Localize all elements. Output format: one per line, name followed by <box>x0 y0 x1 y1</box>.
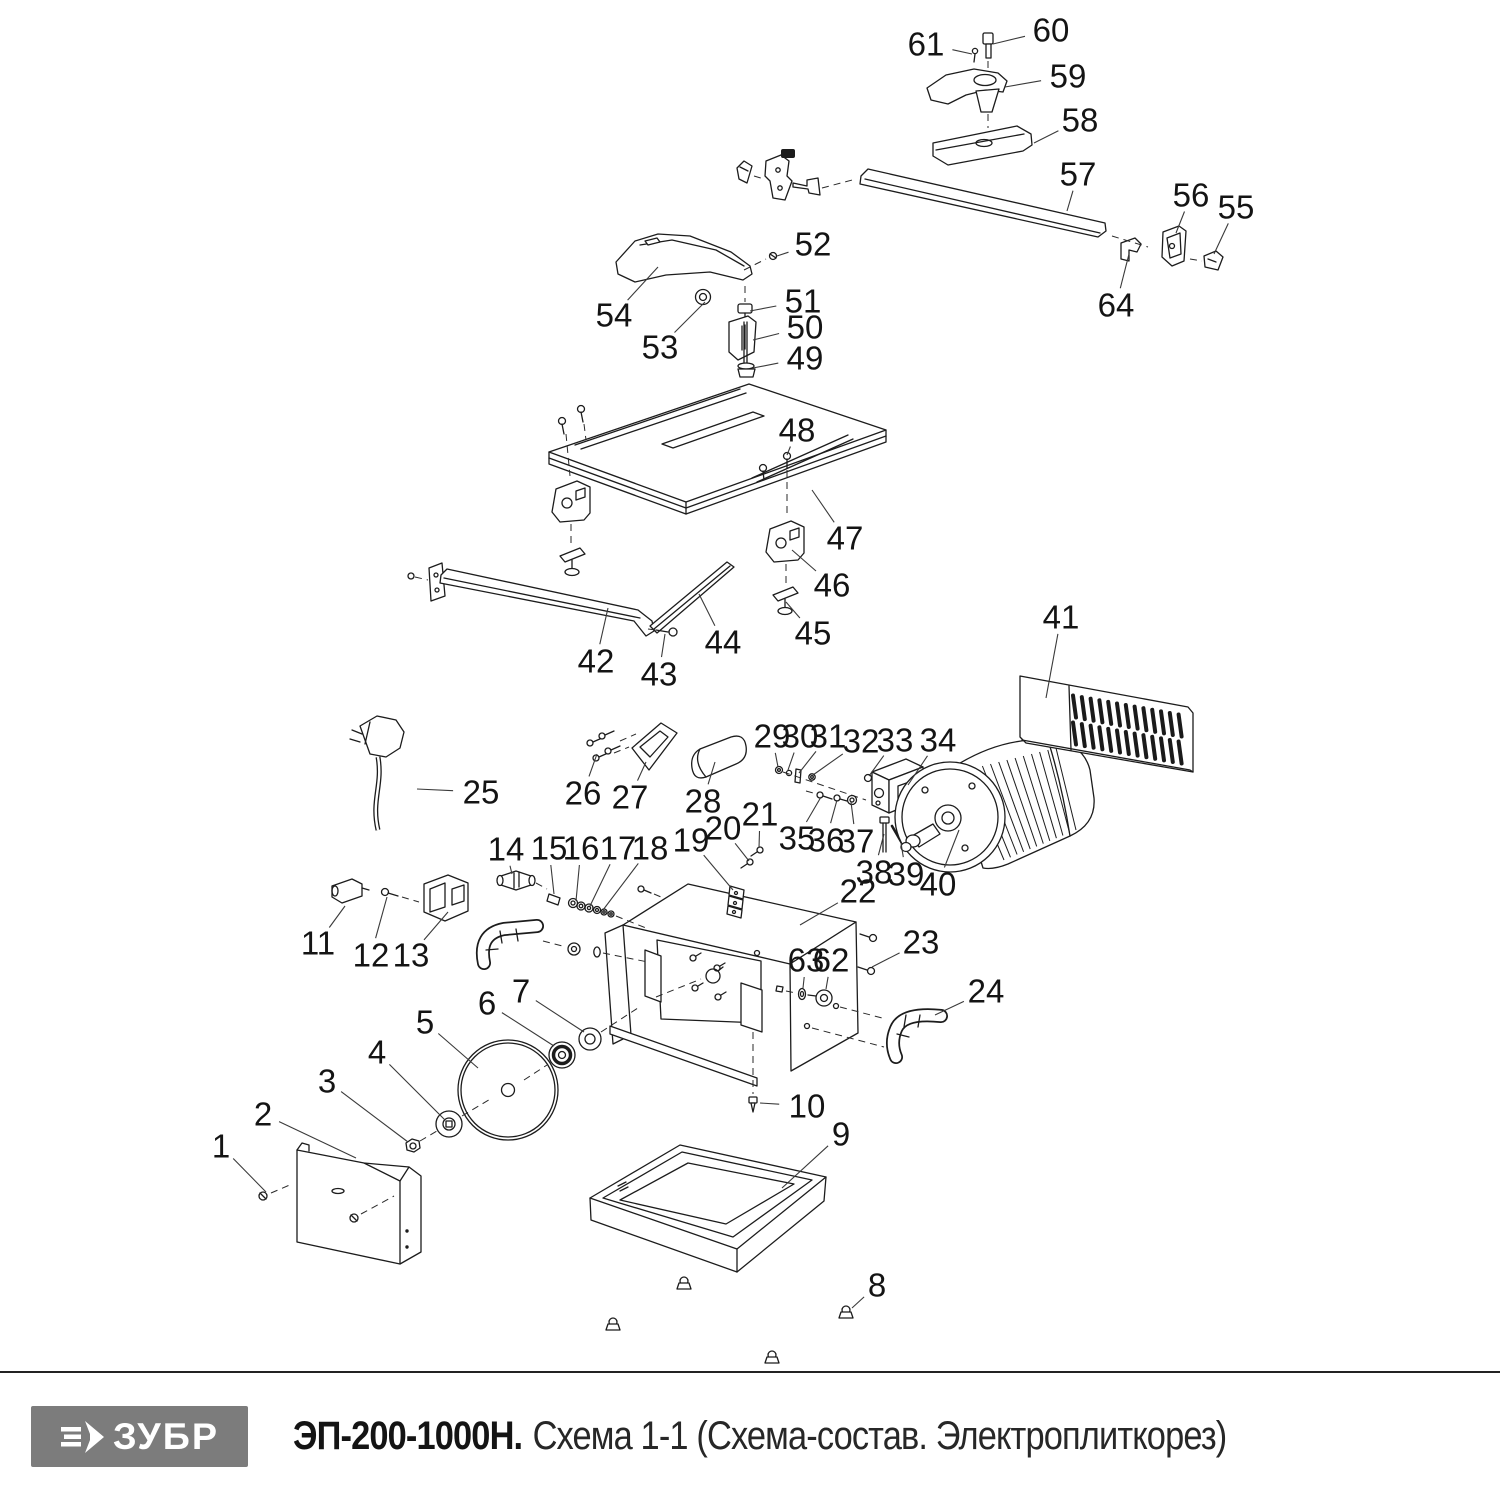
zubr-logo: ЗУБР <box>31 1406 248 1467</box>
blade-and-flanges <box>406 979 701 1152</box>
leader-57 <box>1067 191 1073 211</box>
callout-9: 9 <box>832 1116 850 1153</box>
callout-60: 60 <box>1033 12 1070 49</box>
leader-16 <box>576 865 579 901</box>
leader-4 <box>389 1064 445 1120</box>
callout-44: 44 <box>705 624 742 661</box>
leader-52 <box>777 252 789 256</box>
leader-17 <box>590 864 610 906</box>
switch-parts <box>587 723 746 778</box>
leader-55 <box>1214 223 1228 254</box>
zubr-arrow-icon <box>61 1420 105 1454</box>
callout-18: 18 <box>632 830 669 867</box>
callout-6: 6 <box>478 985 496 1022</box>
page: 1234567891011121314151617181920212223242… <box>0 0 1500 1500</box>
leader-7 <box>536 1001 584 1032</box>
callout-21: 21 <box>742 796 779 833</box>
footer-divider <box>0 1371 1500 1373</box>
callout-45: 45 <box>795 615 832 652</box>
leader-12 <box>376 897 387 938</box>
leader-51 <box>750 306 776 311</box>
callout-57: 57 <box>1060 156 1097 193</box>
callout-53: 53 <box>642 329 679 366</box>
leader-44 <box>699 594 715 626</box>
callout-11: 11 <box>301 925 335 962</box>
leader-25 <box>417 789 453 791</box>
blade-guard-assembly <box>616 234 777 305</box>
leader-23 <box>872 953 900 967</box>
callout-1: 1 <box>212 1128 230 1165</box>
callout-24: 24 <box>968 973 1005 1010</box>
callout-56: 56 <box>1173 177 1210 214</box>
callout-32: 32 <box>843 723 880 760</box>
callout-2: 2 <box>254 1096 272 1133</box>
callout-33: 33 <box>877 722 914 759</box>
main-housing <box>605 884 886 1112</box>
leader-18 <box>603 863 638 910</box>
leader-35 <box>806 797 821 822</box>
blade-cover <box>259 1143 421 1264</box>
callout-3: 3 <box>318 1063 336 1100</box>
rail-stop-parts <box>1112 226 1223 270</box>
callout-40: 40 <box>920 866 957 903</box>
leader-21 <box>759 831 760 848</box>
callout-10: 10 <box>789 1088 826 1125</box>
leader-24 <box>935 1001 964 1015</box>
model-number: ЭП-200-1000Н. <box>293 1414 522 1458</box>
callout-16: 16 <box>563 830 600 867</box>
leader-36 <box>831 800 837 823</box>
leader-60 <box>993 36 1025 44</box>
callout-54: 54 <box>596 297 633 334</box>
leader-53 <box>675 302 706 333</box>
depth-stop-assembly <box>729 286 756 377</box>
callout-41: 41 <box>1043 599 1080 636</box>
callout-64: 64 <box>1098 287 1135 324</box>
callout-25: 25 <box>463 774 500 811</box>
callout-51: 51 <box>785 283 822 320</box>
leader-10 <box>760 1103 779 1104</box>
leader-58 <box>1034 131 1058 143</box>
rail-clamp-cluster <box>737 149 856 200</box>
callout-14: 14 <box>488 831 525 868</box>
callout-12: 12 <box>353 937 390 974</box>
callout-43: 43 <box>641 656 678 693</box>
rubber-feet <box>606 1277 853 1363</box>
callout-59: 59 <box>1050 58 1087 95</box>
callout-52: 52 <box>795 226 832 263</box>
leader-29 <box>775 753 778 767</box>
leader-49 <box>753 363 778 368</box>
power-plug <box>350 716 404 830</box>
callout-13: 13 <box>393 937 430 974</box>
leader-50 <box>753 334 779 341</box>
callout-34: 34 <box>920 722 957 759</box>
water-tray <box>590 1145 826 1272</box>
callout-layer: 1234567891011121314151617181920212223242… <box>212 12 1255 1309</box>
callout-28: 28 <box>685 783 722 820</box>
callout-27: 27 <box>612 779 649 816</box>
leader-30 <box>788 753 794 770</box>
callout-47: 47 <box>827 520 864 557</box>
callout-8: 8 <box>868 1267 886 1304</box>
callout-58: 58 <box>1062 102 1099 139</box>
callout-55: 55 <box>1218 189 1255 226</box>
leader-32 <box>813 754 843 775</box>
leader-3 <box>341 1092 408 1142</box>
leader-1 <box>233 1159 266 1193</box>
leader-31 <box>799 751 816 773</box>
carry-handle-right <box>893 1015 941 1057</box>
leader-8 <box>852 1297 864 1308</box>
callout-23: 23 <box>903 924 940 961</box>
schema-title: Схема 1-1 (Схема-состав. Электроплиткоре… <box>533 1414 1227 1458</box>
leader-47 <box>812 490 834 522</box>
callout-46: 46 <box>814 567 851 604</box>
leader-15 <box>551 865 554 894</box>
leader-19 <box>704 855 733 890</box>
leader-43 <box>662 634 666 657</box>
callout-7: 7 <box>512 973 530 1010</box>
callout-63: 63 <box>788 942 825 979</box>
leader-61 <box>952 50 972 54</box>
footer-title: ЭП-200-1000Н.Схема 1-1 (Схема-состав. Эл… <box>293 1406 1378 1467</box>
leader-37 <box>851 802 854 824</box>
callout-31: 31 <box>810 718 847 755</box>
callout-5: 5 <box>416 1004 434 1041</box>
exploded-diagram: 1234567891011121314151617181920212223242… <box>0 0 1500 1500</box>
callout-48: 48 <box>779 412 816 449</box>
leader-59 <box>1005 81 1041 87</box>
callout-26: 26 <box>565 775 602 812</box>
leader-5 <box>438 1034 478 1069</box>
callout-61: 61 <box>908 26 945 63</box>
callout-4: 4 <box>368 1034 386 1071</box>
callout-42: 42 <box>578 643 615 680</box>
leader-2 <box>279 1122 356 1158</box>
brand-name: ЗУБР <box>113 1416 219 1458</box>
